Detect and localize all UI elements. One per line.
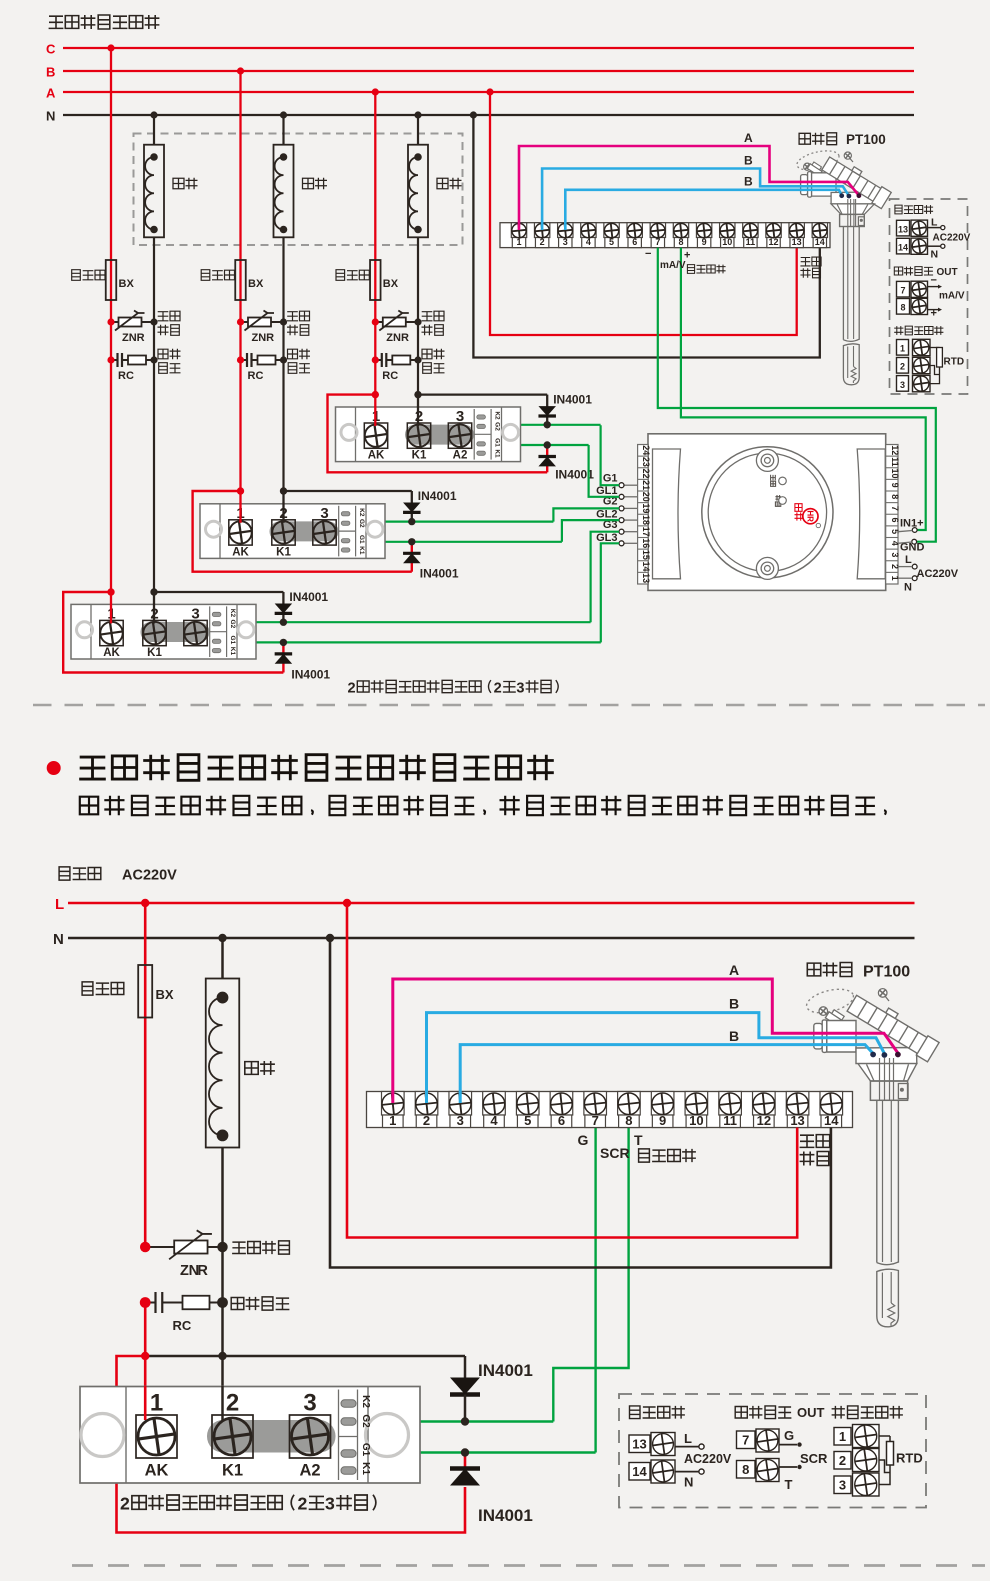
- svg-text:13: 13: [632, 1437, 646, 1452]
- svg-text:14: 14: [898, 242, 908, 252]
- svg-text:3: 3: [456, 408, 464, 425]
- svg-text:B: B: [744, 154, 753, 168]
- svg-text:AC220V: AC220V: [933, 233, 971, 244]
- svg-text:19: 19: [641, 503, 651, 513]
- svg-text:3: 3: [191, 605, 199, 622]
- svg-text:24: 24: [641, 445, 651, 455]
- svg-text:+: +: [931, 308, 937, 320]
- svg-text:T: T: [785, 1477, 793, 1492]
- svg-text:3: 3: [563, 237, 568, 247]
- svg-text:Z: Z: [180, 1263, 189, 1279]
- svg-text:14: 14: [815, 237, 825, 247]
- svg-text:13: 13: [898, 224, 908, 234]
- svg-text:2: 2: [540, 237, 545, 247]
- svg-text:21: 21: [641, 480, 651, 490]
- svg-text:12: 12: [769, 237, 779, 247]
- svg-text:1: 1: [389, 1113, 396, 1128]
- svg-text:L: L: [905, 554, 912, 566]
- svg-text:IN4001: IN4001: [291, 668, 330, 682]
- svg-text:G1: G1: [358, 535, 365, 544]
- svg-text:3: 3: [516, 680, 524, 696]
- svg-text:11: 11: [723, 1113, 737, 1128]
- svg-text:8: 8: [625, 1113, 632, 1128]
- svg-text:K1: K1: [276, 546, 291, 558]
- svg-text:4: 4: [586, 237, 591, 247]
- svg-text:BX: BX: [248, 278, 264, 290]
- svg-text:L: L: [55, 896, 64, 913]
- svg-text:N: N: [931, 249, 939, 261]
- svg-text:IN1+: IN1+: [900, 518, 924, 530]
- svg-text:13: 13: [792, 237, 802, 247]
- svg-text:AC220V: AC220V: [917, 568, 959, 580]
- svg-text:−: −: [931, 275, 937, 287]
- svg-text:AC220V: AC220V: [684, 1452, 732, 1466]
- svg-text:1: 1: [150, 1390, 163, 1417]
- svg-text:17: 17: [641, 527, 651, 537]
- svg-text:ZNR: ZNR: [386, 332, 409, 344]
- svg-text:3: 3: [303, 1390, 316, 1417]
- svg-text:2: 2: [839, 1453, 846, 1468]
- svg-text:G1: G1: [603, 472, 618, 484]
- svg-text:2: 2: [297, 1494, 307, 1514]
- svg-text:mA/V: mA/V: [660, 260, 686, 271]
- svg-text:−: −: [645, 248, 651, 260]
- svg-text:L: L: [931, 217, 938, 229]
- svg-text:G1: G1: [494, 438, 501, 447]
- svg-text:N: N: [904, 582, 912, 594]
- svg-text:IN4001: IN4001: [478, 1361, 533, 1380]
- svg-text:IN4001: IN4001: [289, 590, 328, 604]
- svg-text:A: A: [46, 86, 56, 101]
- svg-text:IN4001: IN4001: [553, 393, 592, 407]
- svg-text:K1: K1: [358, 546, 365, 555]
- svg-text:1: 1: [516, 237, 521, 247]
- svg-text:7: 7: [890, 506, 900, 511]
- svg-text:C: C: [46, 42, 56, 57]
- svg-text:SCR: SCR: [800, 1451, 828, 1466]
- svg-text:AC220V: AC220V: [122, 868, 177, 884]
- svg-text:10: 10: [722, 237, 732, 247]
- svg-text:3: 3: [457, 1113, 464, 1128]
- svg-text:K1: K1: [494, 449, 501, 458]
- svg-text:6: 6: [890, 518, 900, 523]
- svg-text:IN4001: IN4001: [418, 489, 457, 503]
- svg-text:OUT: OUT: [937, 267, 958, 278]
- svg-text:G2: G2: [358, 519, 365, 528]
- svg-text:B: B: [729, 996, 739, 1012]
- svg-text:6: 6: [632, 237, 637, 247]
- svg-text:IN4001: IN4001: [478, 1506, 533, 1525]
- svg-text:12: 12: [757, 1113, 771, 1128]
- svg-text:8: 8: [890, 494, 900, 499]
- svg-text:RTD: RTD: [896, 1451, 923, 1466]
- svg-text:RC: RC: [118, 370, 134, 382]
- svg-text:SCR: SCR: [600, 1145, 630, 1161]
- svg-text:14: 14: [632, 1464, 647, 1479]
- svg-text:N: N: [46, 109, 55, 124]
- svg-text:AK: AK: [368, 450, 385, 462]
- svg-text:L: L: [684, 1431, 692, 1446]
- svg-text:10: 10: [689, 1113, 703, 1128]
- svg-text:ZNR: ZNR: [252, 332, 275, 344]
- svg-text:G: G: [784, 1428, 794, 1443]
- svg-text:9: 9: [659, 1113, 666, 1128]
- svg-text:N: N: [684, 1475, 693, 1490]
- svg-text:AK: AK: [145, 1462, 169, 1480]
- svg-text:A2: A2: [453, 450, 468, 462]
- svg-text:7: 7: [655, 237, 660, 247]
- svg-text:2: 2: [423, 1113, 430, 1128]
- svg-text:BX: BX: [383, 278, 399, 290]
- svg-text:2: 2: [120, 1494, 130, 1514]
- svg-text:AK: AK: [103, 647, 120, 659]
- svg-text:22: 22: [641, 469, 651, 479]
- svg-text:8: 8: [678, 237, 683, 247]
- svg-text:9: 9: [702, 237, 707, 247]
- svg-text:5: 5: [524, 1113, 531, 1128]
- svg-text:T: T: [634, 1132, 643, 1148]
- svg-text:BX: BX: [119, 278, 135, 290]
- svg-text:5: 5: [609, 237, 614, 247]
- svg-text:+: +: [684, 250, 690, 262]
- svg-text:3: 3: [890, 552, 900, 557]
- svg-text:3: 3: [839, 1478, 846, 1493]
- svg-text:20: 20: [641, 492, 651, 502]
- svg-text:11: 11: [890, 457, 900, 467]
- svg-text:8: 8: [900, 303, 905, 313]
- svg-text:7: 7: [592, 1113, 599, 1128]
- svg-text:1: 1: [900, 344, 905, 354]
- svg-text:RC: RC: [248, 370, 264, 382]
- svg-text:RC: RC: [173, 1318, 192, 1333]
- svg-text:13: 13: [790, 1113, 804, 1128]
- svg-text:14: 14: [641, 562, 651, 572]
- svg-text:13: 13: [641, 573, 651, 583]
- svg-text:15: 15: [641, 550, 651, 560]
- svg-text:RC: RC: [382, 370, 398, 382]
- svg-text:ZNR: ZNR: [122, 332, 145, 344]
- svg-text:A2: A2: [299, 1462, 320, 1480]
- svg-text:RTD: RTD: [944, 357, 965, 368]
- svg-text:18: 18: [641, 515, 651, 525]
- svg-text:B: B: [729, 1028, 739, 1044]
- svg-text:K2: K2: [358, 508, 365, 517]
- svg-text:K1: K1: [222, 1462, 243, 1480]
- svg-text:2: 2: [226, 1390, 239, 1417]
- svg-text:G2: G2: [360, 1414, 371, 1428]
- svg-text:16: 16: [641, 538, 651, 548]
- svg-text:G2: G2: [229, 620, 236, 629]
- svg-text:K1: K1: [147, 647, 162, 659]
- svg-text:K2: K2: [494, 411, 501, 420]
- svg-text:2: 2: [494, 680, 502, 696]
- svg-text:12: 12: [890, 445, 900, 455]
- svg-text:PT100: PT100: [863, 964, 910, 981]
- svg-text:HR: HR: [805, 510, 814, 522]
- svg-text:23: 23: [641, 457, 651, 467]
- svg-text:G1: G1: [360, 1443, 371, 1457]
- svg-text:G1: G1: [229, 636, 236, 645]
- svg-text:GL3: GL3: [596, 532, 617, 544]
- svg-text:4: 4: [490, 1113, 498, 1128]
- svg-text:K2: K2: [229, 609, 236, 618]
- svg-text:K2: K2: [360, 1395, 371, 1408]
- svg-text:OUT: OUT: [797, 1405, 825, 1420]
- svg-text:10: 10: [890, 469, 900, 479]
- svg-text:3: 3: [900, 380, 905, 390]
- svg-text:1: 1: [839, 1429, 846, 1444]
- svg-text:2: 2: [900, 362, 905, 372]
- svg-text:BX: BX: [156, 987, 174, 1002]
- svg-text:A: A: [729, 962, 739, 978]
- svg-text:mA/V: mA/V: [939, 291, 965, 302]
- svg-text:G: G: [578, 1132, 589, 1148]
- svg-text:K1: K1: [412, 450, 427, 462]
- svg-text:N: N: [53, 931, 64, 948]
- svg-text:AK: AK: [232, 546, 249, 558]
- svg-text:14: 14: [824, 1113, 839, 1128]
- svg-text:B: B: [46, 65, 55, 80]
- svg-text:R: R: [197, 1263, 208, 1279]
- svg-text:6: 6: [558, 1113, 565, 1128]
- svg-text:PT100: PT100: [846, 132, 886, 147]
- svg-text:3: 3: [320, 505, 328, 522]
- svg-text:3: 3: [325, 1494, 335, 1514]
- svg-text:K1: K1: [360, 1462, 371, 1475]
- svg-text:11: 11: [746, 237, 756, 247]
- svg-text:B: B: [744, 175, 753, 189]
- svg-text:2: 2: [348, 680, 356, 696]
- svg-text:7: 7: [900, 286, 905, 296]
- svg-text:9: 9: [890, 483, 900, 488]
- svg-text:K1: K1: [229, 647, 236, 656]
- svg-text:IN4001: IN4001: [420, 567, 459, 581]
- svg-text:7: 7: [742, 1433, 749, 1448]
- svg-text:8: 8: [742, 1462, 749, 1477]
- svg-text:G2: G2: [494, 422, 501, 431]
- svg-text:A: A: [744, 131, 753, 145]
